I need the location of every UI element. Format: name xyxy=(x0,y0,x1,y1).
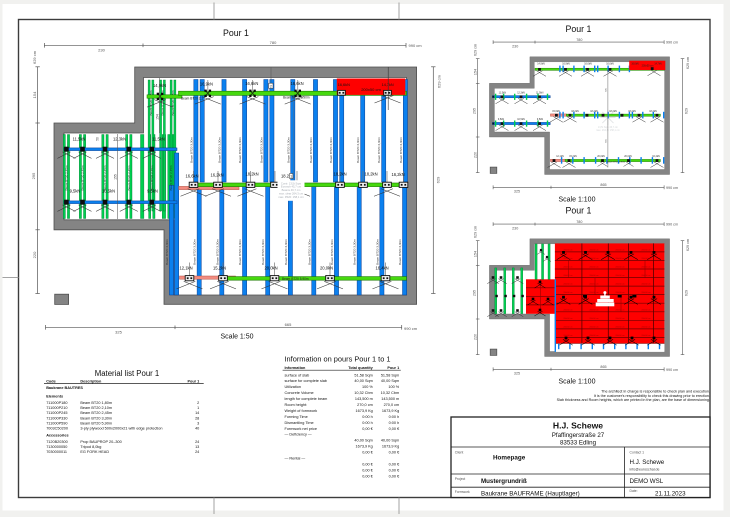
svg-text:Beam BT20 3,30m: Beam BT20 3,30m xyxy=(286,137,290,163)
svg-text:0,00 €: 0,00 € xyxy=(389,474,400,478)
svg-text:18,2kN: 18,2kN xyxy=(628,110,636,113)
svg-text:Beam BT20 2,45m: Beam BT20 2,45m xyxy=(81,165,85,191)
svg-text:Pour 1: Pour 1 xyxy=(187,379,199,383)
svg-text:200x50 cm: 200x50 cm xyxy=(641,275,651,277)
svg-text:28: 28 xyxy=(195,416,199,420)
svg-text:Pour 1: Pour 1 xyxy=(566,24,592,34)
svg-text:51,58 Sqm: 51,58 Sqm xyxy=(381,373,399,377)
svg-text:155: 155 xyxy=(113,174,117,180)
svg-text:9,5kN: 9,5kN xyxy=(70,188,81,193)
svg-text:100 %: 100 % xyxy=(362,385,373,389)
svg-text:Total quantity: Total quantity xyxy=(348,366,373,370)
svg-text:surface of slab: surface of slab xyxy=(285,373,310,377)
svg-text:200x50 cm: 200x50 cm xyxy=(641,335,651,337)
svg-text:990 cm: 990 cm xyxy=(666,223,678,227)
svg-text:Beam BT20 3,30m: Beam BT20 3,30m xyxy=(218,137,222,163)
svg-text:14,7kN: 14,7kN xyxy=(654,63,662,65)
svg-text:Scale 1:100: Scale 1:100 xyxy=(559,197,596,204)
svg-text:11,5kN: 11,5kN xyxy=(73,137,86,142)
svg-text:200x50 cm: 200x50 cm xyxy=(589,292,599,294)
svg-text:18,2kN: 18,2kN xyxy=(245,172,258,177)
svg-text:EG FORK HEAD: EG FORK HEAD xyxy=(80,450,109,454)
svg-text:18,2kN: 18,2kN xyxy=(571,110,579,113)
svg-text:Pfaffingerstraße 27: Pfaffingerstraße 27 xyxy=(552,432,605,439)
svg-text:1673,9 Kg: 1673,9 Kg xyxy=(355,445,372,449)
svg-text:Client: Client xyxy=(455,451,464,455)
svg-text:325: 325 xyxy=(514,372,520,376)
svg-text:Beam BT20 2,45m: Beam BT20 2,45m xyxy=(80,411,112,415)
svg-text:Project: Project xyxy=(455,477,466,481)
svg-text:220: 220 xyxy=(474,152,478,158)
svg-text:200x50 cm: 200x50 cm xyxy=(589,309,599,311)
svg-text:711000P180: 711000P180 xyxy=(46,401,67,405)
svg-text:200x50 cm: 200x50 cm xyxy=(641,309,651,311)
svg-text:665: 665 xyxy=(285,322,292,327)
svg-text:Beam BT20 3,30m: Beam BT20 3,30m xyxy=(375,239,379,265)
svg-text:Beam BT20 3,30m: Beam BT20 3,30m xyxy=(80,416,112,420)
svg-text:Beam BT20 2,45m: Beam BT20 2,45m xyxy=(149,90,153,116)
svg-text:Information: Information xyxy=(285,366,307,370)
svg-text:143,500 m: 143,500 m xyxy=(355,397,373,401)
svg-text:1673,9 Kg: 1673,9 Kg xyxy=(382,445,399,449)
svg-text:Beam BT20 2,1: Beam BT20 2,1 xyxy=(181,97,203,101)
svg-text:154: 154 xyxy=(474,251,478,257)
svg-text:Formwork net price: Formwork net price xyxy=(285,427,318,431)
svg-text:200x50 cm: 200x50 cm xyxy=(589,267,599,269)
svg-text:13: 13 xyxy=(195,445,199,449)
svg-text:200x50 cm: 200x50 cm xyxy=(563,258,573,260)
svg-text:629 cm: 629 cm xyxy=(686,57,690,69)
svg-text:711000P210: 711000P210 xyxy=(46,406,67,410)
svg-text:Baukrane BAUTRES: Baukrane BAUTRES xyxy=(46,386,83,390)
svg-text:990 cm: 990 cm xyxy=(666,368,678,372)
svg-text:Beam BT20 3,30m: Beam BT20 3,30m xyxy=(238,137,242,163)
svg-text:0,00 €: 0,00 € xyxy=(362,474,373,478)
svg-text:711000P330: 711000P330 xyxy=(46,416,67,420)
svg-text:16,2kN: 16,2kN xyxy=(391,172,404,177)
svg-text:200x50 cm: 200x50 cm xyxy=(615,267,625,269)
svg-text:83533 Edling: 83533 Edling xyxy=(560,439,597,446)
svg-text:154: 154 xyxy=(474,69,478,75)
svg-text:16,9kN: 16,9kN xyxy=(200,81,213,86)
svg-text:Code: Code xyxy=(46,379,56,383)
svg-text:3-ply plywood 500x2000x21 with: 3-ply plywood 500x2000x21 with edge prot… xyxy=(80,427,162,431)
svg-text:200x50 cm: 200x50 cm xyxy=(642,65,654,68)
svg-text:16,9kN: 16,9kN xyxy=(562,63,570,66)
svg-text:16,6kN: 16,6kN xyxy=(338,83,350,87)
svg-text:220: 220 xyxy=(32,251,37,258)
svg-text:295: 295 xyxy=(31,172,36,179)
svg-text:51,58 Sqm: 51,58 Sqm xyxy=(354,373,372,377)
svg-text:Material list Pour 1: Material list Pour 1 xyxy=(95,369,160,378)
svg-text:Contr. 13,5t Sqm: Contr. 13,5t Sqm xyxy=(281,181,302,185)
svg-text:9,5kN: 9,5kN xyxy=(537,118,544,121)
svg-text:50: 50 xyxy=(96,137,100,141)
svg-text:12,1kN: 12,1kN xyxy=(179,266,192,271)
svg-text:7003C50200: 7003C50200 xyxy=(46,427,68,431)
svg-text:max. clear 264,3 cm: max. clear 264,3 cm xyxy=(279,192,304,196)
svg-text:Elements: Elements xyxy=(46,395,63,399)
svg-text:Beam BT20 2,10m: Beam BT20 2,10m xyxy=(80,406,112,410)
svg-text:629: 629 xyxy=(685,290,689,296)
svg-text:230: 230 xyxy=(512,226,518,230)
svg-text:Scale 1:100: Scale 1:100 xyxy=(559,379,596,386)
svg-text:0,00 €: 0,00 € xyxy=(389,427,400,431)
svg-text:Beam BT20 3,30m: Beam BT20 3,30m xyxy=(215,239,219,265)
svg-text:10,32 Cbm: 10,32 Cbm xyxy=(354,391,373,395)
svg-text:200x50 cm: 200x50 cm xyxy=(615,292,625,294)
svg-text:200x50 cm: 200x50 cm xyxy=(361,87,381,92)
svg-text:surface for complete slab: surface for complete slab xyxy=(285,379,327,383)
svg-text:0:00 h: 0:00 h xyxy=(362,421,373,425)
svg-text:Beam BT20 2,45m: Beam BT20 2,45m xyxy=(64,165,68,191)
svg-text:0,00 €: 0,00 € xyxy=(362,462,373,466)
svg-text:Beam BT20 3,30m: Beam BT20 3,30m xyxy=(238,239,242,265)
svg-text:Baukrane BAUFRAME (Hauptlager): Baukrane BAUFRAME (Hauptlager) xyxy=(481,491,580,498)
svg-text:Formwork: Formwork xyxy=(455,490,470,494)
svg-text:990 cm: 990 cm xyxy=(666,41,678,45)
svg-text:200x50 cm: 200x50 cm xyxy=(563,275,573,277)
svg-text:Beam BT20 3,30m: Beam BT20 3,30m xyxy=(165,239,169,265)
svg-text:16,2kN: 16,2kN xyxy=(210,173,223,178)
svg-text:270,0 cm: 270,0 cm xyxy=(357,403,373,407)
svg-text:Beam BT20 2,45m: Beam BT20 2,45m xyxy=(150,165,154,191)
svg-text:711000P590: 711000P590 xyxy=(46,422,67,426)
svg-text:Accessories: Accessories xyxy=(46,433,68,437)
svg-text:325: 325 xyxy=(514,190,520,194)
svg-text:200x50 cm: 200x50 cm xyxy=(563,309,573,311)
svg-text:Pour 1: Pour 1 xyxy=(566,206,592,216)
svg-text:200x50 cm: 200x50 cm xyxy=(589,318,599,320)
svg-text:40: 40 xyxy=(195,427,199,431)
svg-text:Beam BT20 3,30m: Beam BT20 3,30m xyxy=(307,239,311,265)
svg-text:990 cm: 990 cm xyxy=(404,326,418,331)
svg-text:Beam BT20 3,30m: Beam BT20 3,30m xyxy=(309,137,313,163)
svg-text:0,00 €: 0,00 € xyxy=(362,468,373,472)
svg-text:200x50 cm: 200x50 cm xyxy=(641,250,651,252)
svg-text:Pour 1: Pour 1 xyxy=(387,366,399,370)
svg-text:780: 780 xyxy=(576,38,582,42)
svg-text:295: 295 xyxy=(473,290,477,296)
svg-text:Weight of formwork: Weight of formwork xyxy=(285,409,318,413)
svg-text:629 cm: 629 cm xyxy=(32,50,37,64)
svg-text:200x50 cm: 200x50 cm xyxy=(615,258,625,260)
svg-text:20,0kN: 20,0kN xyxy=(264,265,277,270)
svg-text:200x50 cm: 200x50 cm xyxy=(563,250,573,252)
svg-text:Beam BT20 3,30m: Beam BT20 3,30m xyxy=(261,239,265,265)
svg-text:0,00 €: 0,00 € xyxy=(362,451,373,455)
svg-text:16,6kN: 16,6kN xyxy=(606,63,614,66)
svg-text:230: 230 xyxy=(98,48,105,53)
svg-text:14,7kN: 14,7kN xyxy=(382,83,394,87)
svg-text:629 cm: 629 cm xyxy=(474,44,478,56)
svg-text:200x50 cm: 200x50 cm xyxy=(589,275,599,277)
svg-text:Beam BT20 3,30m: Beam BT20 3,30m xyxy=(284,239,288,265)
svg-text:Beam BT20 2,45m: Beam BT20 2,45m xyxy=(171,90,175,116)
svg-text:Eurosch 45,7 cm: Eurosch 45,7 cm xyxy=(281,185,302,189)
svg-text:325: 325 xyxy=(115,330,122,335)
svg-text:0,00 €: 0,00 € xyxy=(389,468,400,472)
svg-text:629 cm: 629 cm xyxy=(686,239,690,251)
svg-text:Room height:: Room height: xyxy=(285,403,308,407)
svg-text:10,5kN: 10,5kN xyxy=(517,118,525,121)
svg-text:Contact 1: Contact 1 xyxy=(630,451,645,455)
svg-text:7130000050: 7130000050 xyxy=(46,445,67,449)
svg-text:Beam BT20 3,30m: Beam BT20 3,30m xyxy=(189,137,193,163)
svg-text:0:00 h: 0:00 h xyxy=(389,421,400,425)
svg-text:40,00 Sqm: 40,00 Sqm xyxy=(354,379,372,383)
svg-text:Slab thickness and Room height: Slab thickness and Room heights, which a… xyxy=(557,398,710,402)
svg-text:200x50 cm: 200x50 cm xyxy=(615,309,625,311)
svg-text:Pour 1: Pour 1 xyxy=(223,28,249,38)
svg-text:1: 1 xyxy=(197,406,199,410)
svg-text:Beams 46,7 cm: Beams 46,7 cm xyxy=(282,188,301,192)
svg-text:40,00 Sqm: 40,00 Sqm xyxy=(381,379,399,383)
svg-text:0:00 h: 0:00 h xyxy=(389,415,400,419)
svg-text:Beam BT20 2,45m: Beam BT20 2,45m xyxy=(103,165,107,191)
svg-text:Information on pours Pour 1 t: Information on pours Pour 1 to 1 xyxy=(285,354,391,363)
svg-text:200x50 cm: 200x50 cm xyxy=(563,292,573,294)
svg-text:200x50 cm: 200x50 cm xyxy=(615,275,625,277)
svg-text:1673,9 Kg: 1673,9 Kg xyxy=(382,409,399,413)
svg-text:2: 2 xyxy=(197,401,199,405)
svg-text:21.11.2023: 21.11.2023 xyxy=(655,490,686,497)
svg-text:12,3kN: 12,3kN xyxy=(517,91,525,94)
svg-text:Beam BT20 5,90m: Beam BT20 5,90m xyxy=(607,161,625,163)
svg-text:20,0kN: 20,0kN xyxy=(320,265,333,270)
svg-text:Beam BT20 3,30m: Beam BT20 3,30m xyxy=(377,137,381,163)
svg-text:3: 3 xyxy=(197,422,199,426)
svg-text:200x50 cm: 200x50 cm xyxy=(641,292,651,294)
svg-text:0,00 €: 0,00 € xyxy=(389,451,400,455)
svg-text:16,6kN: 16,6kN xyxy=(245,81,258,86)
svg-text:200x50 cm: 200x50 cm xyxy=(563,327,573,329)
svg-text:15,6kN: 15,6kN xyxy=(552,110,560,113)
svg-text:18,2kN: 18,2kN xyxy=(333,172,346,177)
svg-text:20,0kN: 20,0kN xyxy=(624,155,632,158)
svg-text:Beam BT20 3,30m: Beam BT20 3,30m xyxy=(356,137,360,163)
svg-text:24: 24 xyxy=(195,440,199,444)
svg-text:16,4kN: 16,4kN xyxy=(652,155,660,158)
svg-text:711000P245: 711000P245 xyxy=(46,411,67,415)
svg-text:200x50 cm: 200x50 cm xyxy=(589,284,599,286)
svg-text:40,00 Sqm: 40,00 Sqm xyxy=(354,439,372,443)
svg-text:Beam BT20 1,80m: Beam BT20 1,80m xyxy=(80,401,112,405)
svg-text:200x50 cm: 200x50 cm xyxy=(641,258,651,260)
svg-text:200x50 cm: 200x50 cm xyxy=(563,267,573,269)
svg-text:1: 1 xyxy=(290,175,292,179)
svg-text:1673,9 Kg: 1673,9 Kg xyxy=(355,409,372,413)
svg-text:990 cm: 990 cm xyxy=(409,43,423,48)
svg-text:length for complete beam: length for complete beam xyxy=(285,397,328,401)
svg-text:16,6kN: 16,6kN xyxy=(290,81,303,86)
svg-text:0,00 €: 0,00 € xyxy=(362,427,373,431)
svg-text:11,5kN: 11,5kN xyxy=(536,91,544,94)
svg-text:629 cm: 629 cm xyxy=(474,226,478,238)
svg-text:16,6kN: 16,6kN xyxy=(185,174,198,179)
svg-text:200x50 cm: 200x50 cm xyxy=(615,250,625,252)
svg-text:629: 629 xyxy=(436,176,441,183)
svg-text:18,2kN: 18,2kN xyxy=(609,110,617,113)
svg-text:200x50 cm: 200x50 cm xyxy=(641,318,651,320)
svg-text:Beam BT20 3,30m: Beam BT20 3,30m xyxy=(399,137,403,163)
svg-text:Prop BAUPROP 20–300: Prop BAUPROP 20–300 xyxy=(80,440,121,444)
svg-text:16,6kN: 16,6kN xyxy=(631,63,639,65)
svg-text:H.J. Schewe: H.J. Schewe xyxy=(553,421,603,431)
svg-text:Beam BT20 2,45m: Beam BT20 2,45m xyxy=(127,165,131,191)
svg-text:14,9kN: 14,9kN xyxy=(537,63,545,66)
svg-text:Description: Description xyxy=(80,379,102,383)
svg-text:200x50 cm: 200x50 cm xyxy=(615,284,625,286)
svg-text:info@euroschal.de: info@euroschal.de xyxy=(630,468,660,472)
svg-text:Beam BT20 3,30m: Beam BT20 3,30m xyxy=(353,239,357,265)
svg-text:15,2kN: 15,2kN xyxy=(569,155,577,158)
svg-text:16,6kN: 16,6kN xyxy=(584,63,592,66)
svg-text:9,5kN: 9,5kN xyxy=(147,188,158,193)
svg-text:7120B20300: 7120B20300 xyxy=(46,440,68,444)
svg-text:154: 154 xyxy=(155,114,159,120)
svg-text:295: 295 xyxy=(473,108,477,114)
svg-text:Beam BT20 3,30m: Beam BT20 3,30m xyxy=(259,137,263,163)
svg-text:780: 780 xyxy=(576,220,582,224)
svg-text:14: 14 xyxy=(195,411,199,415)
svg-text:Beam BT20 5,90m: Beam BT20 5,90m xyxy=(80,422,112,426)
svg-text:7030000011: 7030000011 xyxy=(46,450,67,454)
svg-text:780: 780 xyxy=(270,40,277,45)
svg-text:154: 154 xyxy=(32,91,37,98)
svg-text:629 cm: 629 cm xyxy=(437,74,442,88)
svg-text:200x50 cm: 200x50 cm xyxy=(563,335,573,337)
svg-text:Scale 1:50: Scale 1:50 xyxy=(220,334,253,341)
svg-text:10,32 Cbm: 10,32 Cbm xyxy=(381,391,400,395)
svg-text:Beam BT20 5,90m: Beam BT20 5,90m xyxy=(282,277,309,281)
svg-text:18,2kN: 18,2kN xyxy=(649,110,657,113)
svg-text:Beam BT20 3,30m: Beam BT20 3,30m xyxy=(330,239,334,265)
svg-text:Homepage: Homepage xyxy=(493,455,526,462)
svg-text:10,5kN: 10,5kN xyxy=(102,188,115,193)
svg-text:Concrete Volume: Concrete Volume xyxy=(285,391,314,395)
svg-text:12,1kN: 12,1kN xyxy=(556,155,564,158)
svg-text:2: 2 xyxy=(270,84,272,88)
svg-text:H.J. Schewe: H.J. Schewe xyxy=(630,459,665,466)
svg-text:220: 220 xyxy=(474,334,478,340)
svg-text:100 %: 100 % xyxy=(388,385,399,389)
svg-text:Utilization: Utilization xyxy=(285,385,301,389)
svg-text:200x50 cm: 200x50 cm xyxy=(589,250,599,252)
svg-text:18.2: 18.2 xyxy=(281,173,290,178)
svg-text:DEMO WSL: DEMO WSL xyxy=(630,478,664,485)
svg-text:Forming Time: Forming Time xyxy=(285,415,308,419)
svg-text:Beam BT20 3,30m: Beam BT20 3,30m xyxy=(193,239,197,265)
svg-text:24: 24 xyxy=(195,450,199,454)
svg-text:200x50 cm: 200x50 cm xyxy=(641,284,651,286)
svg-text:0:00 h: 0:00 h xyxy=(362,415,373,419)
svg-text:Beam BT20 3,30m: Beam BT20 3,30m xyxy=(329,137,333,163)
svg-text:143,500 m: 143,500 m xyxy=(381,397,399,401)
svg-text:9,5kN: 9,5kN xyxy=(498,118,505,121)
svg-text:11,5kN: 11,5kN xyxy=(499,91,507,94)
svg-text:200x50 cm: 200x50 cm xyxy=(641,327,651,329)
svg-text:20,0kN: 20,0kN xyxy=(597,155,605,158)
svg-text:200x50 cm: 200x50 cm xyxy=(615,327,625,329)
svg-text:— Deficiency —: — Deficiency — xyxy=(285,433,312,437)
svg-text:Beam BT20 3,30m: Beam BT20 3,30m xyxy=(398,239,402,265)
svg-text:200x50 cm: 200x50 cm xyxy=(589,258,599,260)
svg-text:0,00 €: 0,00 € xyxy=(389,462,400,466)
svg-text:200x50 cm: 200x50 cm xyxy=(563,284,573,286)
svg-text:200x50 cm: 200x50 cm xyxy=(615,335,625,337)
svg-text:Tripod 8,0kg: Tripod 8,0kg xyxy=(80,445,101,449)
svg-text:Date:: Date: xyxy=(630,489,638,493)
svg-text:865: 865 xyxy=(600,365,606,369)
svg-text:200x50 cm: 200x50 cm xyxy=(641,267,651,269)
svg-text:200x50 cm: 200x50 cm xyxy=(589,335,599,337)
svg-text:Mustergrundriß: Mustergrundriß xyxy=(481,478,527,485)
svg-text:18,2kN: 18,2kN xyxy=(590,110,598,113)
svg-text:15,2kN: 15,2kN xyxy=(213,265,226,270)
svg-text:990 cm: 990 cm xyxy=(666,186,678,190)
svg-text:12,3kN: 12,3kN xyxy=(113,137,126,142)
svg-text:Dismantling Time: Dismantling Time xyxy=(285,421,314,425)
svg-text:200x50 cm: 200x50 cm xyxy=(589,327,599,329)
svg-text:200x50 cm: 200x50 cm xyxy=(615,318,625,320)
svg-text:max. P620: 158,1 cm: max. P620: 158,1 cm xyxy=(278,195,304,199)
svg-text:Beam BT20 2,45m: Beam BT20 2,45m xyxy=(169,165,173,191)
svg-text:865: 865 xyxy=(600,183,606,187)
svg-text:629: 629 xyxy=(685,108,689,114)
svg-text:— Rental —: — Rental — xyxy=(285,457,306,461)
svg-text:270,0 cm: 270,0 cm xyxy=(384,403,400,407)
svg-text:200x50 cm: 200x50 cm xyxy=(563,318,573,320)
svg-text:16,4kN: 16,4kN xyxy=(375,265,388,270)
svg-text:230: 230 xyxy=(512,44,518,48)
svg-text:40,00 Sqm: 40,00 Sqm xyxy=(381,439,399,443)
svg-text:11,5kN: 11,5kN xyxy=(152,137,165,142)
svg-text:18,2kN: 18,2kN xyxy=(364,172,377,177)
